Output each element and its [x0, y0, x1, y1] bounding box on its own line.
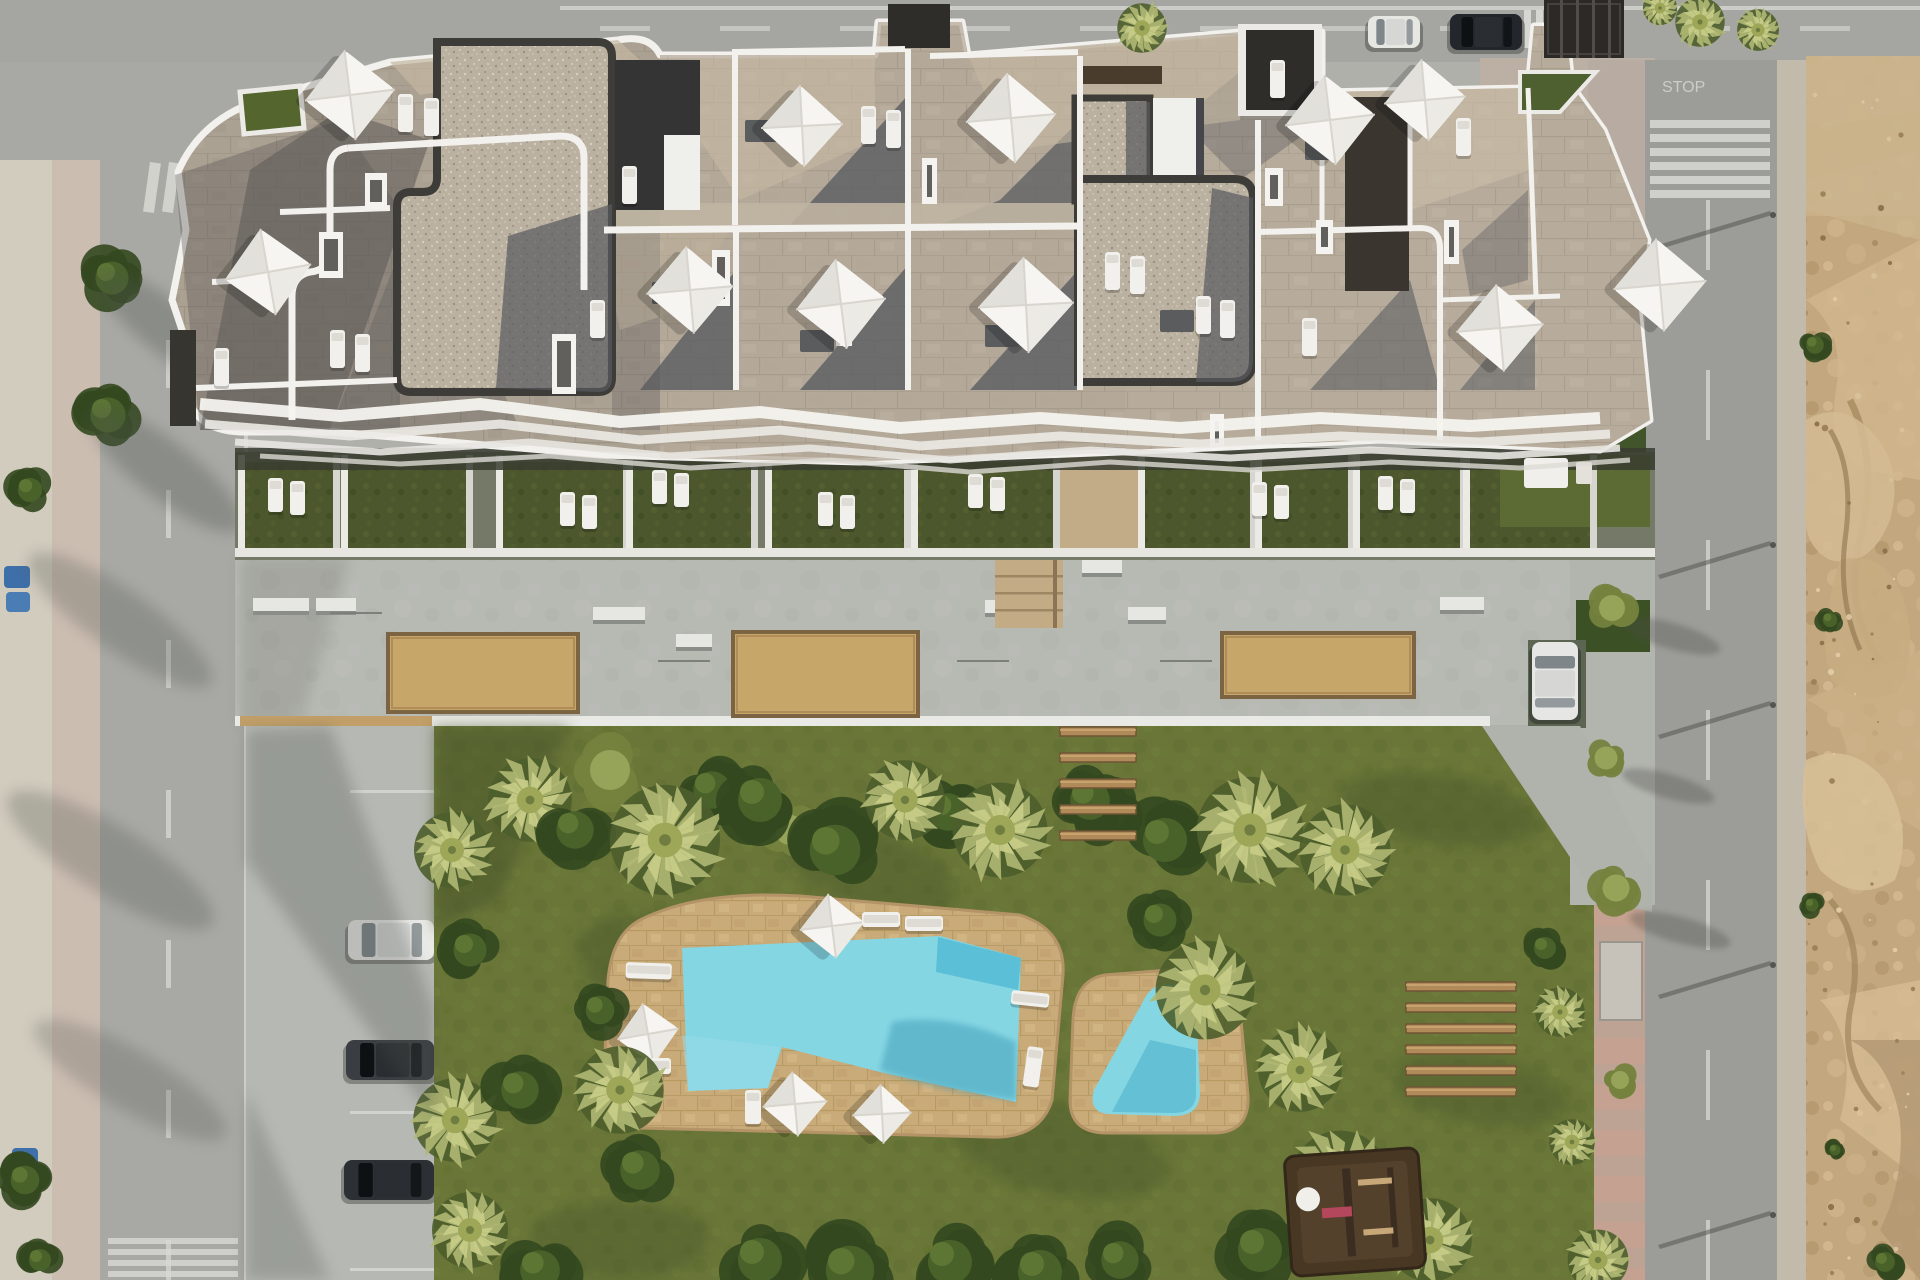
svg-text:STOP: STOP: [1662, 79, 1705, 96]
